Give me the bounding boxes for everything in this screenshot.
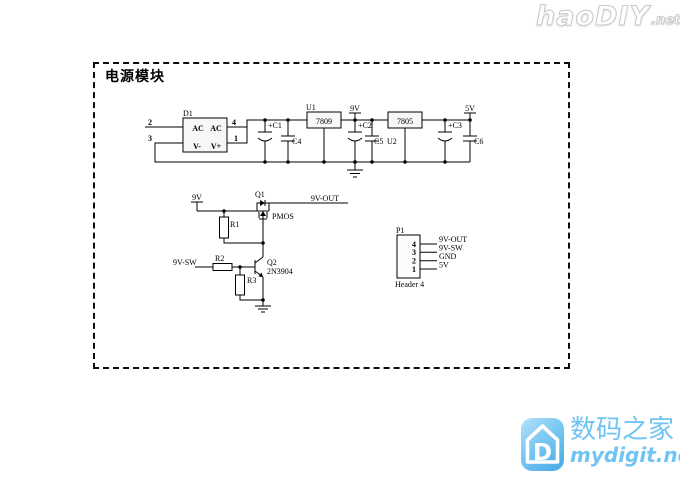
bridge-pin4-label: 4	[232, 118, 236, 127]
p1-name-label: Header 4	[395, 280, 424, 289]
cap-c1-label: +C1	[268, 121, 282, 130]
p1-pin1-label: 1	[412, 265, 416, 274]
sw-9v-label: 9V-SW	[173, 258, 197, 267]
pmos-arrow-icon	[260, 211, 266, 216]
bridge-ac2-label: AC	[210, 124, 222, 133]
switch-9v-label: 9V	[192, 193, 202, 202]
q1-type-label: PMOS	[272, 212, 294, 221]
ground-symbol-main	[347, 162, 363, 177]
r3-label: R3	[247, 276, 256, 285]
bridge-pin1-label: 1	[234, 134, 238, 143]
mydigit-icon-letter: D	[533, 440, 552, 466]
mydigit-brand-en: mydigit.net	[570, 444, 680, 466]
bridge-pin3-label: 3	[148, 134, 152, 143]
cap-c2-label: +C2	[358, 121, 372, 130]
page: haoDIY .net 电源模块	[0, 0, 680, 478]
q1-ref-label: Q1	[255, 190, 265, 199]
bridge-ref-label: D1	[183, 109, 193, 118]
u1-part-label: 7809	[316, 117, 332, 126]
pmos-body-diode-icon	[260, 200, 265, 206]
header-p1-body	[397, 235, 420, 278]
cap-c3-label: +C3	[448, 121, 462, 130]
resistor-r1-body	[220, 217, 229, 238]
r1-label: R1	[230, 220, 239, 229]
schematic-drawing: D1 2 3 4 1 AC AC V- V+ U1 7809 U2 7805 9…	[0, 0, 680, 478]
bridge-ac1-label: AC	[192, 124, 204, 133]
bridge-vminus-label: V-	[193, 142, 201, 151]
q2-part-label: 2N3904	[267, 267, 293, 276]
resistor-r3-body	[236, 275, 245, 295]
bridge-vplus-label: V+	[211, 142, 222, 151]
u1-ref-label: U1	[306, 103, 316, 112]
resistor-r2-body	[213, 264, 232, 271]
q2-ref-label: Q2	[267, 258, 277, 267]
out-9v-label: 9V-OUT	[311, 194, 339, 203]
u2-ref-label: U2	[387, 137, 397, 146]
u2-part-label: 7805	[397, 117, 413, 126]
header-pin-stubs	[420, 244, 437, 269]
p1-net-5v-label: 5V	[439, 261, 449, 270]
mydigit-logo-icon: D	[520, 416, 565, 472]
p1-ref-label: P1	[396, 226, 404, 235]
cap-c4-label: C4	[292, 137, 301, 146]
bridge-pin2-label: 2	[148, 118, 152, 127]
rail-9v-label: 9V	[350, 104, 360, 113]
mydigit-logo: D 数码之家 mydigit.net	[520, 416, 680, 472]
mydigit-logo-text: 数码之家 mydigit.net	[570, 416, 680, 466]
rail-5v-label: 5V	[465, 104, 475, 113]
cap-c5-label: C5	[374, 137, 383, 146]
mydigit-brand-cn: 数码之家	[570, 416, 680, 444]
r2-label: R2	[215, 254, 224, 263]
cap-c6-label: C6	[474, 137, 483, 146]
